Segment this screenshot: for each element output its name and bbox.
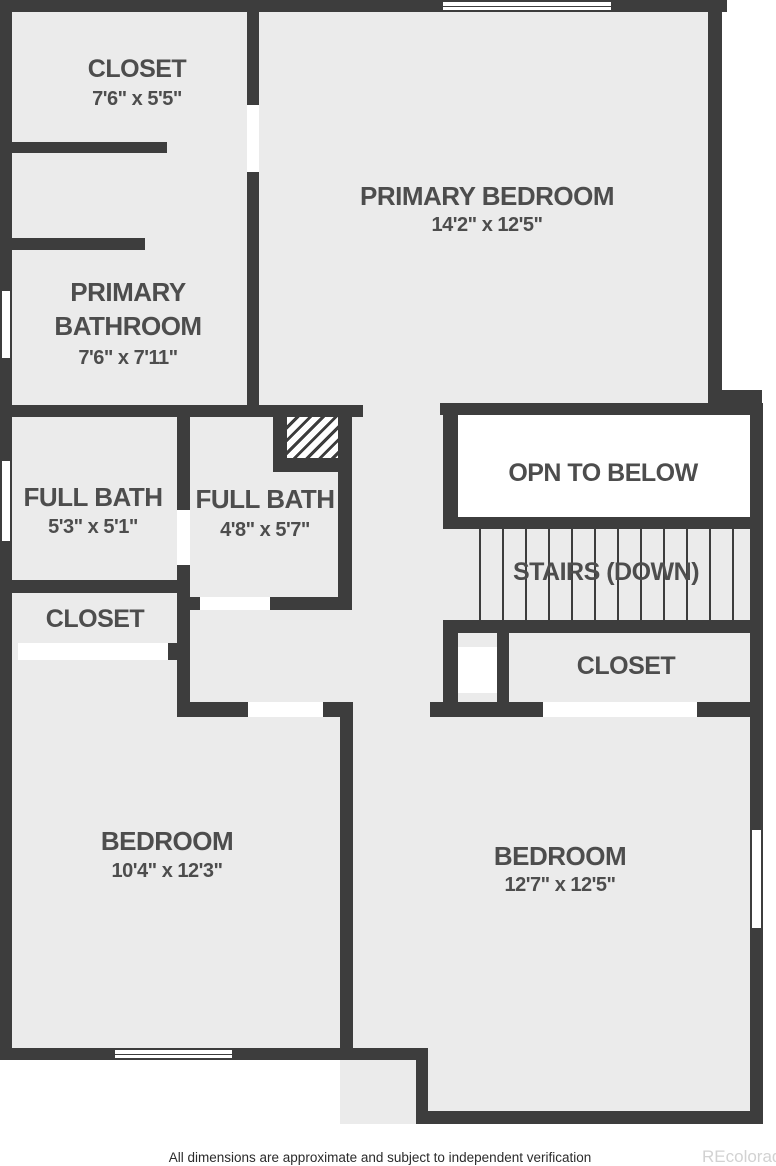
- window-left-bathroom: [0, 282, 12, 367]
- dims-closet-primary: 7'6" x 5'5": [92, 88, 182, 111]
- dims-primary-bathroom: 7'6" x 7'11": [78, 347, 177, 370]
- window-bottom-cap-left: [102, 1048, 115, 1060]
- label-closet-hall-left: CLOSET: [46, 605, 144, 634]
- window-right-cap-top: [750, 818, 763, 830]
- wall-main-horizontal: [0, 405, 363, 417]
- door-opening-bath-divider: [177, 510, 190, 565]
- wall-open-below-top: [440, 403, 762, 415]
- wall-bath-divider: [177, 417, 190, 593]
- window-left-fullbath-cap-bottom: [0, 541, 12, 550]
- label-bedroom-left: BEDROOM: [101, 826, 233, 857]
- wall-closet-stub: [8, 142, 167, 153]
- label-primary-bathroom-line2: BATHROOM: [54, 311, 201, 342]
- wall-stairs-top: [443, 517, 762, 529]
- wall-suite-divider: [247, 0, 259, 415]
- floor-plan: CLOSET 7'6" x 5'5" PRIMARY BEDROOM 14'2"…: [0, 0, 776, 1166]
- wall-right-upper: [708, 0, 722, 415]
- label-closet-primary: CLOSET: [88, 55, 186, 84]
- dims-full-bath-left: 5'3" x 5'1": [48, 516, 138, 539]
- window-right-bedroom-right: [750, 818, 763, 940]
- wall-right-lower: [750, 403, 763, 1124]
- window-right-cap-bottom: [750, 928, 763, 940]
- label-open-to-below: OPN TO BELOW: [508, 459, 697, 488]
- window-left-bathroom-cap-bottom: [0, 358, 12, 367]
- wall-fullbath-mid-right: [338, 415, 352, 610]
- wall-bottom-right: [416, 1111, 762, 1124]
- shaft-hatch: [287, 417, 338, 458]
- disclaimer-text: All dimensions are approximate and subje…: [169, 1150, 592, 1165]
- wall-bathroom-stub: [8, 238, 145, 250]
- window-top-cap-right: [611, 0, 621, 12]
- window-top-cap-left: [433, 0, 443, 12]
- door-opening-closet-right: [543, 702, 697, 717]
- window-left-fullbath: [0, 452, 12, 550]
- window-left-bathroom-cap-top: [0, 282, 12, 291]
- door-opening-closet-left: [18, 643, 168, 660]
- watermark-recolorado: REcolorado: [702, 1147, 776, 1166]
- door-opening-bedroom-left: [248, 702, 323, 717]
- window-bottom-cap-right: [232, 1048, 245, 1060]
- room-fill-mid-left: [0, 405, 458, 720]
- dims-bedroom-left: 10'4" x 12'3": [112, 860, 223, 883]
- label-primary-bathroom-line1: PRIMARY: [70, 277, 185, 308]
- door-opening-hall-nook: [458, 647, 497, 693]
- window-left-fullbath-cap-top: [0, 452, 12, 461]
- wall-closet-left-cap: [168, 643, 188, 660]
- label-full-bath-mid: FULL BATH: [196, 484, 335, 515]
- window-top: [433, 0, 621, 12]
- label-stairs: STAIRS (DOWN): [513, 558, 699, 587]
- wall-open-below-left: [443, 403, 458, 528]
- wall-stairs-bottom: [443, 620, 762, 633]
- label-bedroom-right: BEDROOM: [494, 841, 626, 872]
- room-fill-bedroom-right: [340, 700, 763, 1124]
- door-opening-primary-suite: [247, 105, 259, 172]
- wall-bedroom-right-left: [340, 702, 353, 1060]
- window-bottom-bedroom-left: [102, 1048, 245, 1060]
- wall-closet-right-divider: [497, 633, 509, 702]
- dims-full-bath-mid: 4'8" x 5'7": [220, 519, 310, 542]
- door-opening-fullbath-mid: [200, 597, 270, 610]
- dims-primary-bedroom: 14'2" x 12'5": [432, 214, 543, 237]
- wall-fullbath-left-bottom: [0, 580, 190, 593]
- label-primary-bedroom: PRIMARY BEDROOM: [360, 181, 614, 212]
- label-full-bath-left: FULL BATH: [24, 482, 163, 513]
- label-closet-hall-right: CLOSET: [577, 652, 675, 681]
- dims-bedroom-right: 12'7" x 12'5": [505, 874, 616, 897]
